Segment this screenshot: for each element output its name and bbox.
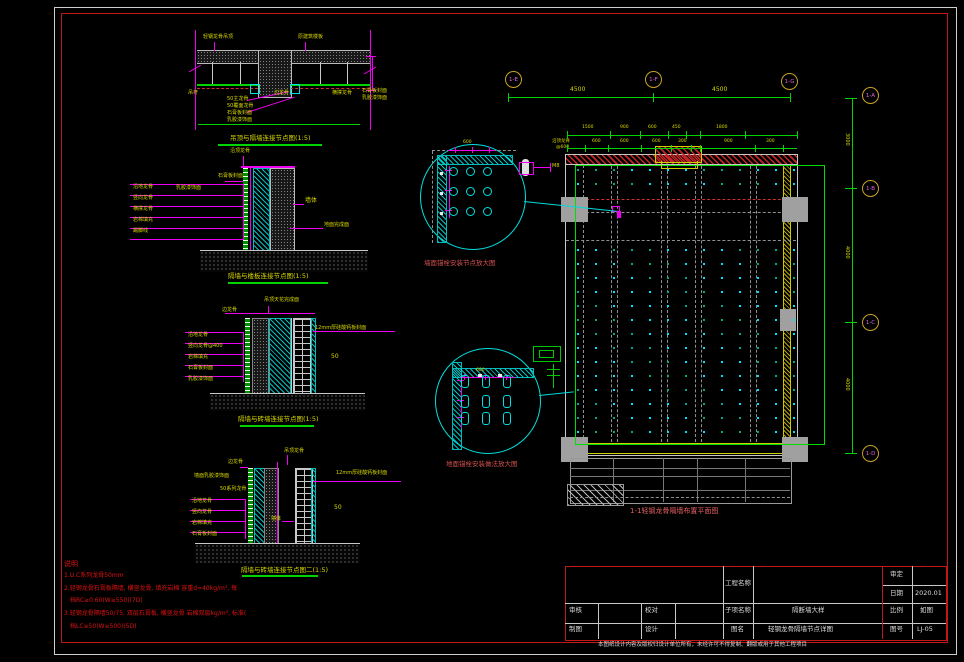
cad-text: 300 bbox=[678, 140, 687, 145]
plan-anchor-dot bbox=[775, 183, 777, 185]
plan-anchor-dot bbox=[649, 263, 651, 265]
plan-anchor-dot bbox=[703, 417, 705, 419]
board-hatch bbox=[311, 468, 316, 545]
anchor-dot bbox=[483, 167, 492, 176]
plan-anchor-dot bbox=[613, 169, 615, 171]
plan-anchor-dot bbox=[757, 305, 759, 307]
plan-anchor-dot bbox=[613, 249, 615, 251]
grid-bubble-label: 1-D bbox=[866, 451, 876, 457]
callout-dashed bbox=[432, 151, 433, 243]
cad-text: 沿地龙骨 bbox=[192, 499, 212, 504]
plan-anchor-dot bbox=[775, 169, 777, 171]
plan-anchor-dot bbox=[631, 333, 633, 335]
runner-strip bbox=[245, 318, 250, 393]
dim-line-right bbox=[852, 98, 853, 453]
anchor-pill bbox=[482, 375, 490, 388]
plan-anchor-dot bbox=[613, 183, 615, 185]
plan-anchor-dot bbox=[613, 305, 615, 307]
fastener-symbol bbox=[553, 364, 554, 388]
callout-tick bbox=[440, 192, 443, 195]
plan-anchor-dot bbox=[667, 431, 669, 433]
plan-anchor-dot bbox=[793, 431, 795, 433]
ground-hatch bbox=[195, 544, 360, 563]
plan-anchor-dot bbox=[703, 403, 705, 405]
plan-anchor-dot bbox=[631, 361, 633, 363]
cad-text: 墙面锚栓安装节点放大图 bbox=[424, 260, 496, 267]
edge-trim bbox=[290, 84, 300, 94]
plan-anchor-dot bbox=[631, 169, 633, 171]
leader bbox=[240, 467, 248, 468]
fastener-symbol bbox=[547, 375, 560, 376]
plan-anchor-dot bbox=[721, 389, 723, 391]
plan-anchor-dot bbox=[577, 319, 579, 321]
cad-text: 石膏板封面 bbox=[362, 89, 387, 94]
plan-anchor-dot bbox=[577, 333, 579, 335]
tb-line bbox=[912, 566, 913, 639]
plan-anchor-dot bbox=[739, 169, 741, 171]
plan-anchor-dot bbox=[649, 417, 651, 419]
dim-tick bbox=[700, 131, 701, 139]
plan-anchor-dot bbox=[721, 375, 723, 377]
callout-tick bbox=[440, 172, 443, 175]
anchor-pill bbox=[482, 395, 490, 408]
cad-text: 石膏板封面 bbox=[227, 111, 252, 116]
dim-tick bbox=[691, 145, 692, 152]
plan-anchor-dot bbox=[757, 417, 759, 419]
plan-anchor-dot bbox=[703, 305, 705, 307]
cad-text: 边龙骨 bbox=[222, 308, 237, 313]
cad-text: 石膏板封面 bbox=[192, 532, 217, 537]
cad-text: 竖向龙骨@400 bbox=[188, 344, 223, 349]
cad-text: 岩棉填充 bbox=[192, 521, 212, 526]
plan-anchor-dot bbox=[613, 319, 615, 321]
plan-anchor-dot bbox=[775, 277, 777, 279]
cad-text: 地面完成面 bbox=[324, 223, 349, 228]
plan-anchor-dot bbox=[703, 183, 705, 185]
plan-anchor-dot bbox=[613, 263, 615, 265]
substructure-line bbox=[570, 476, 790, 477]
callout-tick bbox=[498, 374, 502, 377]
anchor-dot bbox=[483, 207, 492, 216]
plan-anchor-dot bbox=[631, 347, 633, 349]
anchor-dot bbox=[449, 207, 458, 216]
cad-text: 沿地龙骨 bbox=[188, 333, 208, 338]
cad-text: 12mm厚硅酸钙板封面 bbox=[336, 471, 387, 476]
dim-tick bbox=[686, 131, 687, 139]
grid-bubble-label: 1-E bbox=[509, 77, 518, 83]
plan-anchor-dot bbox=[595, 263, 597, 265]
plan-anchor-dot bbox=[667, 291, 669, 293]
plan-anchor-dot bbox=[757, 183, 759, 185]
dim-tick bbox=[845, 453, 857, 454]
dim-bracket bbox=[372, 56, 373, 90]
substructure-line bbox=[663, 458, 664, 502]
plan-anchor-dot bbox=[685, 169, 687, 171]
plan-anchor-dot bbox=[721, 417, 723, 419]
plan-anchor-dot bbox=[721, 249, 723, 251]
leader bbox=[282, 521, 294, 522]
plan-anchor-dot bbox=[667, 403, 669, 405]
dim-tick bbox=[845, 98, 857, 99]
plan-anchor-dot bbox=[739, 403, 741, 405]
plan-anchor-dot bbox=[685, 319, 687, 321]
grid-bubble-label: 1-B bbox=[866, 186, 875, 192]
plan-anchor-dot bbox=[793, 305, 795, 307]
plan-anchor-dot bbox=[721, 333, 723, 335]
tb-footer: 本图纸设计内容及版权归设计单位所有，未经许可不得复制、翻版或用于其他工程项目 bbox=[598, 643, 807, 649]
callout-tick bbox=[440, 212, 443, 215]
plan-anchor-dot bbox=[721, 319, 723, 321]
plan-anchor-dot bbox=[757, 347, 759, 349]
board-line bbox=[291, 318, 292, 393]
leader bbox=[293, 204, 304, 205]
ground-hatch bbox=[210, 394, 365, 411]
cad-text: 沿顶龙骨 bbox=[552, 140, 570, 145]
plan-anchor-dot bbox=[577, 263, 579, 265]
tb-sub-label: 子项名称 bbox=[725, 607, 751, 614]
grid-bubble-label: 1-A bbox=[866, 93, 875, 99]
plan-anchor-dot bbox=[757, 291, 759, 293]
hanger-rod bbox=[240, 62, 241, 84]
plan-anchor-dot bbox=[667, 263, 669, 265]
tb-draft-label: 制图 bbox=[569, 626, 582, 633]
dim-tick bbox=[755, 145, 756, 152]
leader bbox=[313, 331, 395, 332]
dim-tick bbox=[472, 147, 473, 153]
plan-anchor-dot bbox=[775, 305, 777, 307]
plan-anchor-dot bbox=[577, 403, 579, 405]
ceiling-dashed bbox=[197, 88, 258, 89]
plan-anchor-dot bbox=[613, 333, 615, 335]
plan-anchor-dot bbox=[793, 361, 795, 363]
plan-anchor-dot bbox=[595, 403, 597, 405]
cad-text: 900 bbox=[724, 140, 733, 145]
anchor-dot bbox=[449, 167, 458, 176]
cad-line bbox=[370, 30, 371, 130]
cad-text: 竖向龙骨 bbox=[133, 196, 153, 201]
plan-anchor-dot bbox=[703, 361, 705, 363]
dim-tick bbox=[567, 145, 568, 152]
plan-anchor-dot bbox=[631, 183, 633, 185]
cad-text: 石膏板封面 bbox=[218, 174, 243, 179]
cad-text: 岩棉填充 bbox=[188, 355, 208, 360]
plan-anchor-dot bbox=[649, 305, 651, 307]
tb-sheet-value: 轻钢龙骨隔墙节点详图 bbox=[768, 626, 833, 633]
plan-anchor-dot bbox=[649, 375, 651, 377]
tb-line bbox=[723, 566, 724, 639]
plan-anchor-dot bbox=[631, 375, 633, 377]
cad-text: 900 bbox=[620, 126, 629, 131]
title-underline bbox=[240, 425, 314, 427]
tb-scale-value: 如图 bbox=[920, 607, 933, 614]
plan-anchor-dot bbox=[613, 291, 615, 293]
cad-text: 50系列龙骨 bbox=[220, 487, 246, 492]
plan-anchor-dot bbox=[685, 347, 687, 349]
cad-text: 600 bbox=[463, 141, 472, 146]
grid-bubble: 1-C bbox=[862, 314, 879, 331]
dim-tick bbox=[671, 145, 672, 152]
cad-text: 乳胶漆饰面 bbox=[176, 186, 201, 191]
cad-text: 吊顶龙骨 bbox=[284, 449, 304, 454]
plan-anchor-dot bbox=[775, 431, 777, 433]
dim-tick bbox=[653, 93, 654, 102]
plan-anchor-dot bbox=[649, 291, 651, 293]
plan-anchor-dot bbox=[757, 431, 759, 433]
plan-anchor-dot bbox=[595, 291, 597, 293]
cad-text: 墙体 bbox=[271, 517, 281, 522]
plan-anchor-dot bbox=[649, 249, 651, 251]
grid-bubble: 1-G bbox=[781, 73, 798, 90]
plan-anchor-dot bbox=[577, 183, 579, 185]
leader bbox=[305, 42, 306, 51]
cad-text: 600 bbox=[476, 369, 485, 374]
plan-anchor-dot bbox=[775, 403, 777, 405]
plan-anchor-dot bbox=[631, 291, 633, 293]
plan-anchor-dot bbox=[757, 375, 759, 377]
wall-line bbox=[565, 455, 797, 456]
plan-anchor-dot bbox=[577, 417, 579, 419]
plan-anchor-dot bbox=[631, 277, 633, 279]
plan-anchor-dot bbox=[595, 431, 597, 433]
plan-anchor-dot bbox=[631, 249, 633, 251]
cad-text: 4500 bbox=[712, 87, 727, 93]
plan-anchor-dot bbox=[757, 389, 759, 391]
plan-anchor-dot bbox=[721, 361, 723, 363]
anchor-pill bbox=[461, 375, 469, 388]
tb-project-label: 工程名称 bbox=[725, 580, 751, 587]
cad-text: 隔墙与砖墙连接节点图二(1:5) bbox=[241, 567, 328, 574]
plan-anchor-dot bbox=[793, 347, 795, 349]
plan-anchor-dot bbox=[793, 183, 795, 185]
cad-text: 4000 bbox=[844, 378, 849, 391]
plan-anchor-dot bbox=[577, 277, 579, 279]
plan-anchor-dot bbox=[775, 361, 777, 363]
plan-anchor-dot bbox=[775, 347, 777, 349]
plan-anchor-dot bbox=[685, 263, 687, 265]
key-box-u bbox=[661, 161, 698, 169]
tb-sheet-label: 图名 bbox=[731, 626, 744, 633]
cad-text: 横撑龙骨 bbox=[133, 207, 153, 212]
tb-scale-label: 比例 bbox=[890, 607, 903, 614]
cad-text: 原建筑楼板 bbox=[298, 35, 323, 40]
cad-text: 边龙骨 bbox=[228, 460, 243, 465]
anchor-pill bbox=[482, 412, 490, 425]
plan-anchor-dot bbox=[703, 263, 705, 265]
cad-text: 横撑龙骨 bbox=[332, 91, 352, 96]
plan-anchor-dot bbox=[631, 403, 633, 405]
plan-anchor-dot bbox=[685, 305, 687, 307]
tb-line bbox=[598, 603, 599, 639]
anchor-pill bbox=[461, 412, 469, 425]
plan-anchor-dot bbox=[793, 319, 795, 321]
plan-anchor-dot bbox=[577, 431, 579, 433]
cad-text: 档LC≥50(W≥500)(5D) bbox=[70, 624, 136, 630]
plan-anchor-dot bbox=[649, 319, 651, 321]
tb-line bbox=[641, 603, 642, 639]
anchor-symbol-box bbox=[519, 162, 534, 175]
plan-anchor-dot bbox=[757, 169, 759, 171]
plan-anchor-dot bbox=[793, 263, 795, 265]
plan-anchor-dot bbox=[649, 347, 651, 349]
plan-anchor-dot bbox=[793, 375, 795, 377]
plan-anchor-dot bbox=[577, 361, 579, 363]
plan-anchor-dot bbox=[739, 333, 741, 335]
ground-hatch bbox=[200, 251, 368, 272]
cad-text: 踢脚线 bbox=[133, 229, 148, 234]
cad-text: 档RC≥0.60(W≥550)(7D) bbox=[70, 598, 143, 604]
dim-line-small bbox=[567, 135, 797, 136]
stud-line bbox=[250, 168, 251, 250]
dim-tick bbox=[610, 131, 611, 139]
cad-text: 隔墙与砖墙连接节点图(1:5) bbox=[238, 416, 319, 423]
anchor-dot bbox=[449, 187, 458, 196]
plan-anchor-dot bbox=[613, 277, 615, 279]
plan-anchor-dot bbox=[775, 389, 777, 391]
leader bbox=[290, 228, 323, 229]
cad-text: 吊顶天花完成面 bbox=[264, 298, 299, 303]
plan-anchor-dot bbox=[685, 431, 687, 433]
plan-anchor-dot bbox=[739, 319, 741, 321]
cad-text: 450 bbox=[672, 126, 681, 131]
stud-line bbox=[277, 462, 278, 544]
fastener-symbol bbox=[547, 369, 560, 370]
plan-anchor-dot bbox=[793, 169, 795, 171]
plan-anchor-dot bbox=[667, 417, 669, 419]
cad-text: 1-1轻钢龙骨隔墙布置平面图 bbox=[630, 508, 718, 515]
drawing-sheet: 审核 校对 制图 设计 工程名称 子项名称 图名 隔断墙大样 轻钢龙骨隔墙节点详… bbox=[0, 0, 964, 662]
cad-text: 4000 bbox=[844, 246, 849, 259]
plan-anchor-dot bbox=[595, 347, 597, 349]
plan-anchor-dot bbox=[685, 249, 687, 251]
cad-text: 4500 bbox=[570, 87, 585, 93]
plan-anchor-dot bbox=[649, 403, 651, 405]
cad-text: 3000 bbox=[844, 133, 849, 146]
plan-anchor-dot bbox=[649, 431, 651, 433]
plan-anchor-dot bbox=[775, 319, 777, 321]
cad-text: 3.轻钢龙骨隔墙50/75, 双层石膏板, 横竖龙骨 岩棉双层kg/m³, 标准… bbox=[64, 611, 246, 617]
plan-anchor-dot bbox=[577, 347, 579, 349]
plan-anchor-dot bbox=[739, 389, 741, 391]
dim-tick bbox=[783, 145, 784, 152]
cad-text: 吊杆 bbox=[188, 91, 198, 96]
top-cap bbox=[225, 313, 315, 314]
plan-anchor-dot bbox=[703, 319, 705, 321]
cad-text: 轻钢龙骨吊顶 bbox=[203, 35, 233, 40]
tb-line bbox=[882, 566, 883, 639]
plan-anchor-dot bbox=[721, 403, 723, 405]
cad-text: 1500 bbox=[582, 126, 593, 131]
substructure-line bbox=[745, 458, 746, 502]
plan-anchor-dot bbox=[631, 389, 633, 391]
plan-anchor-dot bbox=[595, 249, 597, 251]
plan-anchor-dot bbox=[721, 183, 723, 185]
leader bbox=[550, 163, 551, 172]
plan-anchor-dot bbox=[595, 333, 597, 335]
tb-date-label: 日期 bbox=[890, 590, 903, 597]
plan-anchor-dot bbox=[595, 361, 597, 363]
plan-anchor-dot bbox=[685, 277, 687, 279]
plan-anchor-dot bbox=[703, 169, 705, 171]
plan-anchor-dot bbox=[649, 361, 651, 363]
cad-text: 乳胶漆饰面 bbox=[188, 377, 213, 382]
brick-wall bbox=[293, 318, 312, 395]
dim-tick bbox=[745, 131, 746, 139]
plan-anchor-dot bbox=[757, 263, 759, 265]
anchor-dot bbox=[483, 187, 492, 196]
cad-text: 1.U.C系列龙骨50mm bbox=[64, 573, 124, 579]
ceiling-line bbox=[290, 84, 370, 86]
dim-bracket bbox=[366, 56, 376, 57]
cad-text: 50主龙骨 bbox=[227, 97, 248, 102]
plan-anchor-dot bbox=[577, 375, 579, 377]
plan-anchor-dot bbox=[703, 277, 705, 279]
title-underline bbox=[218, 144, 322, 146]
plan-anchor-dot bbox=[775, 375, 777, 377]
cad-text: 50 bbox=[331, 354, 339, 360]
plan-anchor-dot bbox=[703, 291, 705, 293]
dim-tick bbox=[489, 147, 490, 153]
plan-anchor-dot bbox=[721, 431, 723, 433]
cad-text: 竖向龙骨 bbox=[192, 510, 212, 515]
plan-anchor-dot bbox=[667, 277, 669, 279]
plan-anchor-dot bbox=[649, 333, 651, 335]
cad-text: 2.轻钢龙骨石膏板隔墙, 横竖龙骨, 填充岩棉 容重d=40kg/m³, 每 bbox=[64, 586, 237, 592]
insulation-hatch bbox=[253, 168, 270, 252]
tb-proof-label: 校对 bbox=[645, 607, 658, 614]
cad-text: 石膏板封面 bbox=[188, 366, 213, 371]
plan-anchor-dot bbox=[739, 361, 741, 363]
cad-text: 墙体 bbox=[305, 198, 317, 204]
datum-line bbox=[198, 124, 360, 125]
plan-anchor-dot bbox=[685, 389, 687, 391]
cad-text: 600 bbox=[648, 126, 657, 131]
plan-anchor-dot bbox=[667, 249, 669, 251]
plan-anchor-dot bbox=[703, 347, 705, 349]
plan-anchor-dot bbox=[667, 319, 669, 321]
dim-tick bbox=[508, 93, 509, 102]
plan-anchor-dot bbox=[649, 169, 651, 171]
tb-line bbox=[882, 585, 946, 586]
leader bbox=[268, 306, 269, 313]
plan-anchor-dot bbox=[631, 417, 633, 419]
plan-anchor-dot bbox=[667, 389, 669, 391]
anchor-pill bbox=[461, 395, 469, 408]
hanger-rod bbox=[212, 62, 213, 84]
cad-text: 300 bbox=[766, 140, 775, 145]
substructure-line bbox=[570, 468, 790, 469]
dim-tick bbox=[700, 145, 701, 152]
cad-text: 50 bbox=[334, 505, 342, 511]
substructure-hatch bbox=[567, 484, 624, 506]
plan-anchor-dot bbox=[595, 277, 597, 279]
dim-tick bbox=[585, 145, 586, 152]
plan-anchor-dot bbox=[721, 263, 723, 265]
cad-text: 1800 bbox=[716, 126, 727, 131]
plan-anchor-dot bbox=[577, 389, 579, 391]
cad-text: 隔墙与楼板连接节点图(1:5) bbox=[228, 273, 309, 280]
plan-anchor-dot bbox=[685, 417, 687, 419]
plan-anchor-dot bbox=[721, 305, 723, 307]
dim-tick bbox=[608, 145, 609, 152]
plan-anchor-dot bbox=[577, 169, 579, 171]
grid-bubble-label: 1-C bbox=[866, 320, 875, 326]
plan-anchor-dot bbox=[613, 431, 615, 433]
plan-anchor-dot bbox=[739, 431, 741, 433]
plan-anchor-dot bbox=[757, 277, 759, 279]
tb-design-label: 设计 bbox=[645, 626, 658, 633]
plan-anchor-dot bbox=[793, 333, 795, 335]
callout-band bbox=[437, 155, 447, 243]
